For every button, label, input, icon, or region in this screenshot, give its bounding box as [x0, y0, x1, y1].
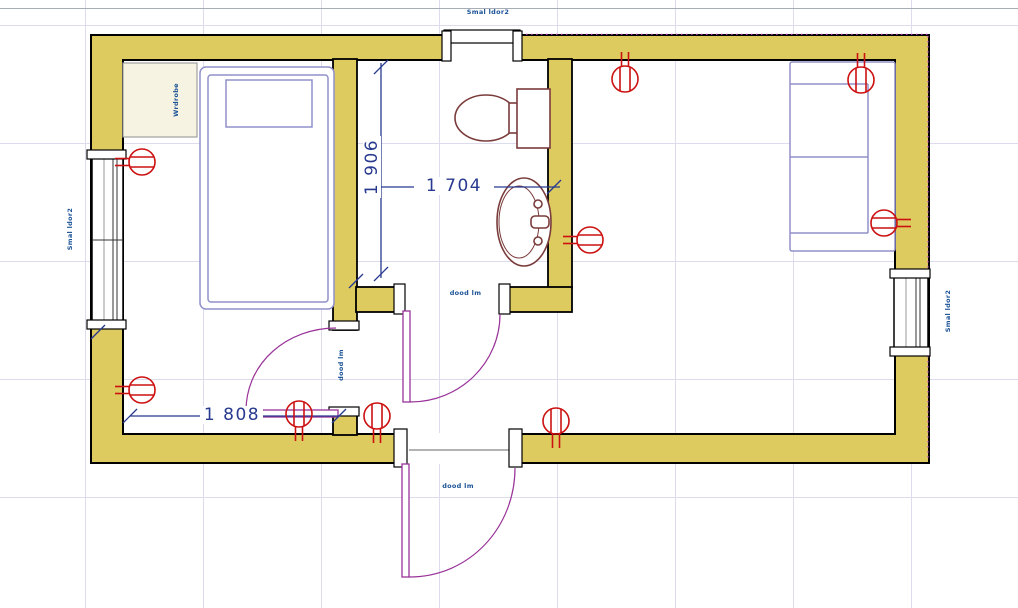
floor-plan-drawing[interactable] [0, 0, 1018, 608]
bathroom-door-tag[interactable]: dood lm [438, 289, 493, 297]
dimension-1808[interactable]: 1 808 [201, 406, 263, 424]
floor-plan-canvas[interactable]: Smal ldor2 Smal ldor2 Smal ldor2 Wrdrobe… [0, 0, 1018, 608]
wardrobe-tag[interactable]: Wrdrobe [172, 75, 180, 125]
bathroom-door[interactable] [403, 311, 500, 402]
sink-tap-hot [534, 200, 542, 208]
right-window-tag[interactable]: Smal ldor2 [944, 286, 952, 336]
left-window-tag[interactable]: Smal ldor2 [66, 204, 74, 254]
wall-bedroom-bathroom[interactable] [333, 59, 357, 330]
toilet-bowl [455, 95, 517, 141]
bathroom-door-leaf [403, 311, 410, 402]
sink-faucet [531, 216, 549, 228]
bedroom-door-tag[interactable]: dood lm [337, 340, 345, 390]
toilet[interactable] [455, 89, 550, 148]
entrance-door-tag[interactable]: dood lm [428, 482, 488, 490]
entrance-opening[interactable] [394, 429, 522, 467]
sink[interactable] [497, 178, 551, 266]
entrance-door-leaf [402, 464, 409, 577]
wardrobe[interactable] [123, 63, 197, 137]
toilet-tank [517, 89, 550, 148]
entrance-door[interactable] [402, 464, 515, 577]
bathroom-door-swing-arc [410, 314, 500, 402]
bedroom-door-swing-arc [246, 328, 336, 411]
right-window[interactable] [890, 269, 930, 356]
sink-tap-cold [534, 237, 542, 245]
left-window[interactable] [87, 150, 126, 329]
bed[interactable] [200, 67, 334, 309]
wall-bathroom-right[interactable] [548, 59, 572, 288]
dimension-1704[interactable]: 1 704 [415, 177, 493, 195]
wall-bathroom-bottom-left[interactable] [356, 287, 400, 312]
wall-bathroom-bottom-right[interactable] [504, 287, 572, 312]
dimension-1906[interactable]: 1 906 [363, 136, 381, 198]
top-window-tag[interactable]: Smal ldor2 [458, 8, 518, 16]
top-opening[interactable] [442, 30, 522, 62]
sofa[interactable] [790, 62, 895, 251]
